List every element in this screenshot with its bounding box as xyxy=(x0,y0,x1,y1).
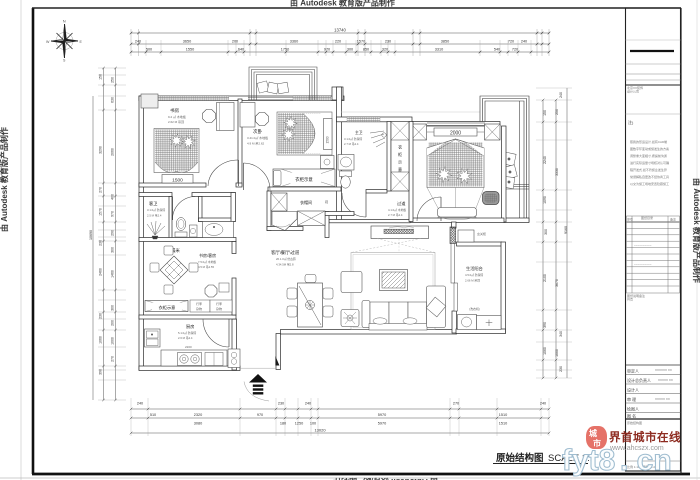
svg-text:备注: 备注 xyxy=(670,217,676,222)
svg-text:220: 220 xyxy=(335,40,341,44)
svg-text:240: 240 xyxy=(521,40,527,44)
svg-text:230: 230 xyxy=(385,40,391,44)
svg-text:设计总负责人: 设计总负责人 xyxy=(627,377,651,383)
svg-text:970: 970 xyxy=(257,413,263,417)
svg-text:1460: 1460 xyxy=(111,270,115,278)
svg-text:230: 230 xyxy=(278,402,284,406)
svg-text:图 名: 图 名 xyxy=(627,413,636,419)
svg-text:1060: 1060 xyxy=(99,336,103,344)
svg-text:原始结构图: 原始结构图 xyxy=(496,452,544,464)
svg-text:180: 180 xyxy=(280,422,286,426)
svg-text:2.66 M 吊顶: 2.66 M 吊顶 xyxy=(465,279,480,283)
svg-text:XXXXX XX: XXXXX XX xyxy=(658,378,673,382)
svg-text:9160: 9160 xyxy=(564,226,568,234)
svg-text:以交为施工场地安置隐蔽施工: 以交为施工场地安置隐蔽施工 xyxy=(630,181,669,186)
svg-text:4.5.0㎡ 防滑砖: 4.5.0㎡ 防滑砖 xyxy=(465,273,483,277)
svg-text:原始结构图: 原始结构图 xyxy=(627,420,642,425)
svg-text:照我的形运设计,如有CAD制: 照我的形运设计,如有CAD制 xyxy=(630,139,667,144)
svg-text:720: 720 xyxy=(512,48,518,52)
svg-text:3310: 3310 xyxy=(435,48,443,52)
svg-text:设计公司: 设计公司 xyxy=(627,89,639,94)
svg-text:1510: 1510 xyxy=(499,422,507,426)
svg-text:2100: 2100 xyxy=(543,274,547,282)
svg-text:300: 300 xyxy=(111,247,115,253)
svg-text:城: 城 xyxy=(589,428,597,438)
svg-text:1750: 1750 xyxy=(281,48,289,52)
svg-text:书房/客房: 书房/客房 xyxy=(199,252,216,258)
svg-text:970: 970 xyxy=(111,211,115,217)
svg-text:1570: 1570 xyxy=(99,208,103,216)
svg-text:图数字环变动或施发生的方案: 图数字环变动或施发生的方案 xyxy=(630,146,669,151)
svg-text:250: 250 xyxy=(555,109,559,115)
svg-text:示: 示 xyxy=(398,160,402,165)
svg-text:进行实际运量寸场核对认可确: 进行实际运量寸场核对认可确 xyxy=(630,160,669,165)
svg-text:生活阳台: 生活阳台 xyxy=(466,265,483,272)
svg-text:XXXXXX XX: XXXXXX XX xyxy=(655,368,672,372)
svg-text:调整重大变相寸,按提前沟通: 调整重大变相寸,按提前沟通 xyxy=(630,153,667,158)
svg-text:绘图人: 绘图人 xyxy=(627,406,639,412)
svg-text:26.1.0㎡ 仿古砖: 26.1.0㎡ 仿古砖 xyxy=(276,257,296,261)
svg-text:2460: 2460 xyxy=(99,268,103,276)
svg-text:970: 970 xyxy=(324,48,330,52)
svg-text:300: 300 xyxy=(347,48,353,52)
svg-text:XXXXX XX: XXXXX XX xyxy=(655,397,670,401)
svg-text:~~~~~~~~~~: ~~~~~~~~~~ xyxy=(634,243,652,247)
svg-text:200: 200 xyxy=(232,40,238,44)
svg-text:N: N xyxy=(63,19,66,24)
svg-text:290: 290 xyxy=(111,230,115,236)
svg-text:1550: 1550 xyxy=(186,48,194,52)
svg-text:由 Autodesk 教育版产品制作: 由 Autodesk 教育版产品制作 xyxy=(0,127,9,232)
svg-text:500: 500 xyxy=(146,48,152,52)
svg-text:270: 270 xyxy=(453,402,459,406)
svg-text:~~~~~~~~~~: ~~~~~~~~~~ xyxy=(634,262,652,266)
svg-text:3330: 3330 xyxy=(555,168,559,176)
svg-text:1090: 1090 xyxy=(543,196,547,204)
svg-text:13740: 13740 xyxy=(334,28,346,33)
svg-text:1510: 1510 xyxy=(499,413,507,417)
svg-text:3290: 3290 xyxy=(99,146,103,154)
svg-text:320: 320 xyxy=(382,48,388,52)
svg-text:230: 230 xyxy=(559,366,563,372)
svg-text:250: 250 xyxy=(111,77,115,83)
svg-text:客厅\餐厅\过道: 客厅\餐厅\过道 xyxy=(271,249,300,256)
svg-text:共页: 共页 xyxy=(627,297,633,302)
svg-text:书房: 书房 xyxy=(170,107,180,114)
svg-text:5970: 5970 xyxy=(378,413,386,417)
svg-text:9.2 ㎡ 木地板: 9.2 ㎡ 木地板 xyxy=(168,114,186,119)
svg-text:1250: 1250 xyxy=(295,422,303,426)
svg-text:界首城市在线: 界首城市在线 xyxy=(609,430,681,444)
svg-text:850: 850 xyxy=(363,48,369,52)
svg-text:640: 640 xyxy=(238,48,244,52)
svg-text:540: 540 xyxy=(494,48,500,52)
svg-text:240: 240 xyxy=(559,92,563,98)
svg-text:W: W xyxy=(46,40,50,44)
svg-text:2200: 2200 xyxy=(185,345,192,349)
svg-text:2060: 2060 xyxy=(111,148,115,156)
svg-text:13020: 13020 xyxy=(314,428,326,433)
svg-text:240: 240 xyxy=(540,402,546,406)
svg-text:150: 150 xyxy=(543,110,547,116)
svg-text:340: 340 xyxy=(559,331,563,337)
svg-text:2.7 M 吊2.4: 2.7 M 吊2.4 xyxy=(388,213,403,217)
svg-text:3.1.0㎡ 防滑砖: 3.1.0㎡ 防滑砖 xyxy=(344,137,362,141)
svg-text:衣柜示意: 衣柜示意 xyxy=(295,176,313,183)
svg-text:7.5.0㎡ 木地板: 7.5.0㎡ 木地板 xyxy=(198,260,216,264)
svg-text:390: 390 xyxy=(99,369,103,375)
svg-text:注): 注) xyxy=(628,119,634,125)
svg-text:510: 510 xyxy=(150,413,156,417)
svg-text:柜: 柜 xyxy=(398,151,402,157)
svg-text:4.5 M 吊2.55: 4.5 M 吊2.55 xyxy=(198,265,214,269)
svg-text:1500: 1500 xyxy=(172,177,183,183)
svg-text:240: 240 xyxy=(135,40,141,44)
svg-text:2.7 M 吊2.4: 2.7 M 吊2.4 xyxy=(344,142,359,146)
svg-text:720: 720 xyxy=(508,40,514,44)
svg-text:常误解私自更改不经协商工具: 常误解私自更改不经协商工具 xyxy=(630,174,669,179)
svg-text:主卫: 主卫 xyxy=(355,130,363,135)
svg-text:2000: 2000 xyxy=(450,131,461,137)
svg-text:270: 270 xyxy=(99,187,103,193)
svg-text:1500: 1500 xyxy=(326,136,330,143)
svg-text:3.1.0㎡ 防滑砖: 3.1.0㎡ 防滑砖 xyxy=(147,208,165,212)
svg-text:200: 200 xyxy=(111,320,115,326)
svg-text:玄关柜: 玄关柜 xyxy=(477,231,486,236)
svg-text:审 理: 审 理 xyxy=(627,396,636,402)
svg-text:3360: 3360 xyxy=(290,40,298,44)
svg-text:1570: 1570 xyxy=(357,40,365,44)
svg-text:1000: 1000 xyxy=(111,337,115,345)
svg-text:240: 240 xyxy=(137,402,143,406)
svg-text:程开发式,如不符施业发生异: 程开发式,如不符施业发生异 xyxy=(630,167,667,172)
svg-text:过道: 过道 xyxy=(397,200,406,207)
svg-text:270: 270 xyxy=(111,356,115,362)
svg-text:4.9 M 吊2.62: 4.9 M 吊2.62 xyxy=(247,142,265,146)
svg-text:衣: 衣 xyxy=(398,144,402,150)
svg-text:100: 100 xyxy=(310,422,316,426)
svg-text:2.62 M 吊顶: 2.62 M 吊顶 xyxy=(168,120,184,124)
svg-text:2.5 M 吊2.4: 2.5 M 吊2.4 xyxy=(147,214,162,218)
svg-text:300: 300 xyxy=(111,305,115,311)
svg-text:3670: 3670 xyxy=(555,279,559,287)
svg-text:400: 400 xyxy=(111,194,115,200)
svg-text:10690: 10690 xyxy=(89,230,93,240)
svg-text:衣帽间: 衣帽间 xyxy=(300,199,312,205)
svg-text:300: 300 xyxy=(544,229,548,235)
svg-text:行李: 行李 xyxy=(216,301,222,306)
svg-text:5970: 5970 xyxy=(378,422,386,426)
svg-text:2320: 2320 xyxy=(194,413,202,417)
svg-text:3850: 3850 xyxy=(441,40,449,44)
svg-text:1000: 1000 xyxy=(555,349,559,357)
svg-text:次卧: 次卧 xyxy=(253,128,263,135)
svg-text:390: 390 xyxy=(543,322,547,328)
svg-text:630: 630 xyxy=(111,97,115,103)
svg-text:fyt8: fyt8 xyxy=(562,444,615,477)
svg-text:鞋: 鞋 xyxy=(325,199,328,204)
svg-text:4.1.0㎡ 木地板: 4.1.0㎡ 木地板 xyxy=(388,208,406,212)
svg-text:杂物: 杂物 xyxy=(196,306,202,311)
svg-text:杂物: 杂物 xyxy=(216,306,222,311)
svg-text:图纸目录: 图纸目录 xyxy=(641,215,653,220)
svg-text:由 Autodesk 教育版产品制作: 由 Autodesk 教育版产品制作 xyxy=(290,0,395,8)
svg-text:3650: 3650 xyxy=(183,40,191,44)
svg-text:客卫: 客卫 xyxy=(149,200,157,207)
svg-text:由 Autodesk 教育版产品制作: 由 Autodesk 教育版产品制作 xyxy=(692,178,700,283)
svg-text:150: 150 xyxy=(99,74,103,80)
svg-text:240: 240 xyxy=(305,402,311,406)
svg-text:230: 230 xyxy=(99,313,103,319)
svg-text:4.34.5M 吊2.8: 4.34.5M 吊2.8 xyxy=(276,263,294,267)
svg-text:审定人: 审定人 xyxy=(627,368,639,374)
svg-text:3080: 3080 xyxy=(194,422,202,426)
svg-text:2240: 2240 xyxy=(543,156,547,164)
svg-text:. cn: . cn xyxy=(620,444,672,477)
svg-text:行李: 行李 xyxy=(196,301,202,306)
svg-text:230: 230 xyxy=(99,240,103,246)
svg-text:(洗衣机): (洗衣机) xyxy=(469,306,480,311)
svg-text:1060: 1060 xyxy=(543,347,547,355)
svg-text:设计人: 设计人 xyxy=(627,387,639,393)
svg-text:厨房: 厨房 xyxy=(186,323,194,330)
svg-text:3.41.0㎡ 木地板: 3.41.0㎡ 木地板 xyxy=(247,135,268,140)
svg-text:序号: 序号 xyxy=(627,217,633,222)
svg-text:5.1.0㎡ 防滑砖: 5.1.0㎡ 防滑砖 xyxy=(178,331,196,335)
svg-text:2.6 M 吊2.4: 2.6 M 吊2.4 xyxy=(178,336,193,340)
svg-text:衣柜示意: 衣柜示意 xyxy=(159,304,176,311)
svg-text:意: 意 xyxy=(398,166,402,172)
